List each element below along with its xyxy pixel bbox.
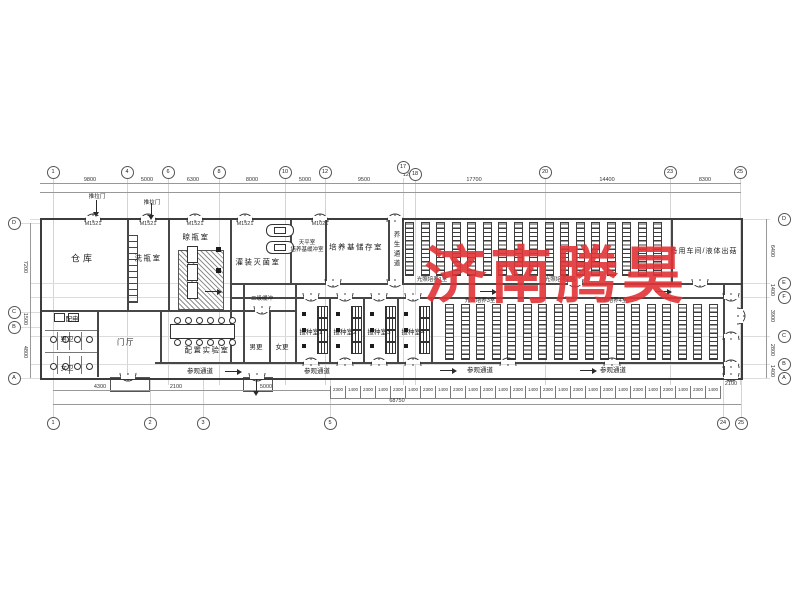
- door-swing-icon: [386, 279, 404, 288]
- room-label: 1400: [769, 284, 775, 296]
- door-swing-icon: [119, 373, 137, 382]
- room-label: M1021: [312, 221, 329, 227]
- dimension-cell: 1400: [556, 386, 571, 398]
- room-label: 参观通道: [187, 365, 213, 375]
- door-symbol: [370, 297, 388, 306]
- room-label: 参观通道: [304, 365, 330, 375]
- room-label: 参观通道: [600, 364, 626, 374]
- door-swing-icon: [737, 307, 746, 325]
- room-label: 2100: [725, 381, 737, 387]
- room-label: 晾瓶室: [183, 232, 210, 243]
- door-symbol: [253, 310, 271, 319]
- room-label: 17700: [466, 177, 481, 183]
- dimension-cell: 2300: [511, 386, 526, 398]
- plan-shape: [30, 223, 31, 378]
- grid-bubble: C: [778, 330, 791, 343]
- grid-line: [53, 379, 54, 417]
- room-label: 接种室3: [367, 326, 390, 336]
- room-label: 接种室1: [299, 326, 322, 336]
- direction-arrow-icon: [580, 370, 593, 371]
- room-label: 5000: [141, 177, 153, 183]
- direction-arrow-icon: [225, 371, 238, 372]
- door-symbol: [236, 209, 254, 218]
- grid-bubble: 2: [144, 417, 157, 430]
- grid-bubble: D: [778, 213, 791, 226]
- room-label: 68750: [389, 398, 404, 404]
- dimension-cell: 2300: [391, 386, 406, 398]
- grid-bubble: 17: [397, 161, 410, 174]
- room-label: 5000: [299, 177, 311, 183]
- room-label: 3900: [769, 310, 775, 322]
- door-swing-icon: [336, 293, 354, 302]
- grid-bubble: 23: [664, 166, 677, 179]
- door-symbol: [302, 353, 320, 362]
- direction-arrow-icon: [256, 379, 257, 392]
- grid-bubble: 6: [162, 166, 175, 179]
- grid-bubble: B: [778, 358, 791, 371]
- door-swing-icon: [722, 359, 740, 368]
- room-label: 1400: [769, 365, 775, 377]
- dimension-cell: 2300: [451, 386, 466, 398]
- door-symbol: [119, 377, 137, 386]
- room-label: 二级缓冲: [251, 294, 273, 302]
- room-label: M1521: [187, 221, 204, 227]
- room-label: 推拉门: [144, 198, 161, 206]
- dimension-cell: 2300: [481, 386, 496, 398]
- direction-arrow-icon: [440, 370, 453, 371]
- room-label: 7200: [22, 261, 28, 273]
- grid-bubble: E: [778, 277, 791, 290]
- room-label: 配电: [66, 313, 79, 323]
- room-label: 9500: [358, 177, 370, 183]
- door-symbol: [499, 353, 517, 362]
- grid-bubble: 1: [47, 166, 60, 179]
- door-symbol: [370, 353, 388, 362]
- dimension-cell: 1400: [436, 386, 451, 398]
- dimension-cell: 2300: [331, 386, 346, 398]
- room-label: 培养基储存室: [329, 242, 383, 253]
- door-symbol: [386, 283, 404, 292]
- dimension-cell: 2300: [361, 386, 376, 398]
- door-swing-icon: [499, 357, 517, 366]
- door-swing-icon: [336, 357, 354, 366]
- grid-bubble: 5: [324, 417, 337, 430]
- room-label: 接种室4: [401, 326, 424, 336]
- door-symbol: [722, 327, 740, 336]
- grid-bubble: 4: [121, 166, 134, 179]
- room-label: 参观通道: [467, 364, 493, 374]
- room-label: 洗瓶室: [135, 253, 162, 264]
- door-symbol: [741, 307, 750, 325]
- door-swing-icon: [722, 293, 740, 302]
- room-label: 2100: [170, 384, 182, 390]
- plan-shape: [53, 390, 330, 391]
- plan-shape: [40, 192, 741, 193]
- grid-bubble: 10: [279, 166, 292, 179]
- direction-arrow-icon: [205, 291, 218, 292]
- grid-bubble: 25: [734, 166, 747, 179]
- door-swing-icon: [253, 306, 271, 315]
- grid-bubble: A: [778, 372, 791, 385]
- room-label: 6400: [769, 245, 775, 257]
- door-swing-icon: [404, 293, 422, 302]
- door-symbol: [603, 353, 621, 362]
- room-label: 女更: [276, 341, 289, 351]
- room-label: 2800: [769, 344, 775, 356]
- room-label: 4800: [22, 346, 28, 358]
- dimension-cell: 1400: [676, 386, 691, 398]
- door-symbol: [722, 355, 740, 364]
- room-label: 接种室2: [333, 326, 356, 336]
- room-label: 养生通道: [390, 231, 400, 269]
- room-label: 推拉门: [89, 192, 106, 200]
- room-label: 仓库: [71, 252, 95, 265]
- door-swing-icon: [370, 357, 388, 366]
- watermark: 济南腾昊: [424, 246, 688, 308]
- door-swing-icon: [370, 293, 388, 302]
- room-label: M1521: [237, 221, 254, 227]
- room-label: 男卫: [61, 333, 74, 343]
- grid-bubble: 12: [319, 166, 332, 179]
- door-symbol: [311, 209, 329, 218]
- dimension-cell: 1400: [706, 386, 721, 398]
- door-swing-icon: [302, 293, 320, 302]
- grid-line: [741, 379, 742, 417]
- room-label: 培养基缓冲室: [290, 245, 323, 253]
- dimension-cell: 1400: [406, 386, 421, 398]
- room-label: 6300: [187, 177, 199, 183]
- direction-arrow-icon: [151, 203, 152, 216]
- dimension-cell: 1400: [616, 386, 631, 398]
- grid-bubble: 24: [717, 417, 730, 430]
- room-label: 配置实验室: [185, 345, 230, 356]
- dimension-cell: 1400: [346, 386, 361, 398]
- door-symbol: [336, 297, 354, 306]
- grid-bubble: D: [8, 217, 21, 230]
- dimension-cell: 2300: [631, 386, 646, 398]
- door-symbol: [404, 297, 422, 306]
- dimension-cell: 1400: [496, 386, 511, 398]
- grid-bubble: 20: [539, 166, 552, 179]
- grid-bubble: C: [8, 306, 21, 319]
- door-symbol: [302, 297, 320, 306]
- door-swing-icon: [386, 213, 404, 222]
- grid-bubble: 1: [47, 417, 60, 430]
- door-symbol: [386, 209, 404, 218]
- room-label: 4300: [94, 384, 106, 390]
- door-swing-icon: [404, 357, 422, 366]
- room-label: 8000: [246, 177, 258, 183]
- door-symbol: [691, 283, 709, 292]
- room-label: 14400: [599, 177, 614, 183]
- room-label: 1500: [22, 313, 28, 325]
- grid-bubble: 8: [213, 166, 226, 179]
- grid-line: [150, 379, 151, 417]
- plan-shape: [766, 219, 767, 378]
- door-swing-icon: [691, 279, 709, 288]
- door-symbol: [324, 283, 342, 292]
- grid-bubble: 18: [409, 168, 422, 181]
- dimension-cell: 2300: [691, 386, 706, 398]
- room-label: M1521: [140, 221, 157, 227]
- room-label: 5000: [260, 384, 272, 390]
- dimension-cell: 2300: [601, 386, 616, 398]
- dimension-cell: 1400: [526, 386, 541, 398]
- dimension-cell: 2300: [421, 386, 436, 398]
- dimension-cell: 1400: [376, 386, 391, 398]
- door-swing-icon: [248, 373, 266, 382]
- room-label: 男更: [250, 341, 263, 351]
- room-label: 女卫: [61, 362, 74, 372]
- dimension-cell: 1400: [466, 386, 481, 398]
- grid-bubble: A: [8, 372, 21, 385]
- door-swing-icon: [722, 331, 740, 340]
- dimension-cell: 2300: [541, 386, 556, 398]
- room-label: 灌装灭菌室: [236, 257, 281, 268]
- grid-bubble: F: [778, 291, 791, 304]
- grid-bubble: 3: [197, 417, 210, 430]
- room-label: 门厅: [117, 337, 135, 348]
- plan-shape: [40, 183, 741, 184]
- room-label: 8300: [699, 177, 711, 183]
- dimension-cell: 1400: [646, 386, 661, 398]
- door-symbol: [722, 297, 740, 306]
- grid-bubble: B: [8, 321, 21, 334]
- plan-shape: [53, 404, 741, 405]
- dimension-cell: 1400: [586, 386, 601, 398]
- room-label: 9800: [84, 177, 96, 183]
- door-symbol: [404, 353, 422, 362]
- direction-arrow-icon: [96, 200, 97, 213]
- room-label: M1521: [85, 221, 102, 227]
- door-symbol: [336, 353, 354, 362]
- door-symbol: [186, 209, 204, 218]
- grid-line: [203, 379, 204, 417]
- floor-plan-sheet: 仓库 洗瓶室 晾瓶室 灌装灭菌室 天平室 培养基缓冲室 培养基储存室 养生通道 …: [0, 0, 800, 600]
- door-swing-icon: [324, 279, 342, 288]
- grid-bubble: 25: [735, 417, 748, 430]
- dimension-cell: 2300: [661, 386, 676, 398]
- dimension-cell: 2300: [571, 386, 586, 398]
